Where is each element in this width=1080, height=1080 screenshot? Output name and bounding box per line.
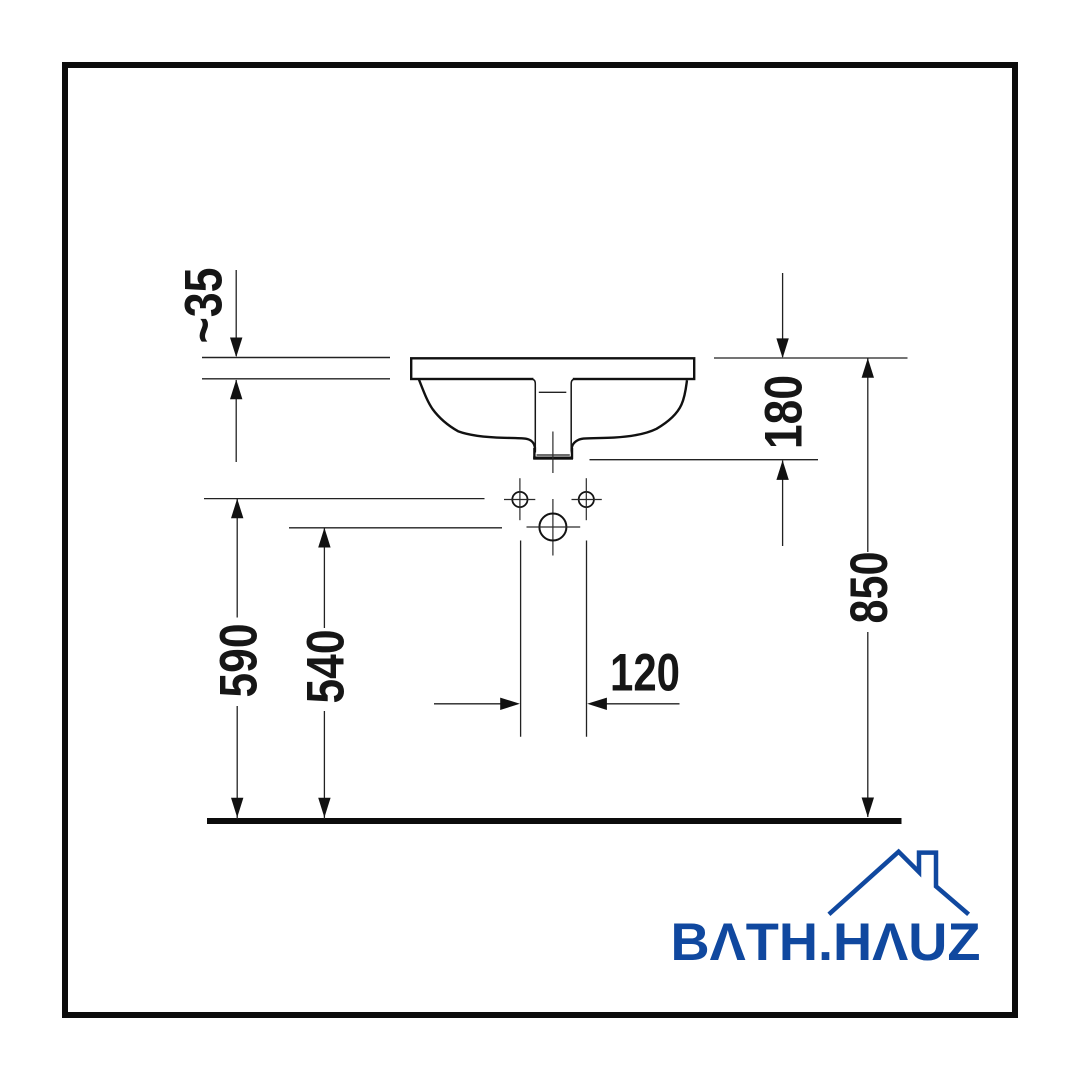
- svg-text:590: 590: [210, 624, 269, 698]
- svg-text:540: 540: [296, 630, 355, 704]
- svg-text:~35: ~35: [175, 267, 234, 343]
- svg-text:850: 850: [840, 552, 899, 624]
- svg-text:180: 180: [755, 375, 814, 449]
- svg-text:120: 120: [610, 643, 680, 702]
- svg-text:BΛTH.HΛUZ: BΛTH.HΛUZ: [671, 913, 981, 972]
